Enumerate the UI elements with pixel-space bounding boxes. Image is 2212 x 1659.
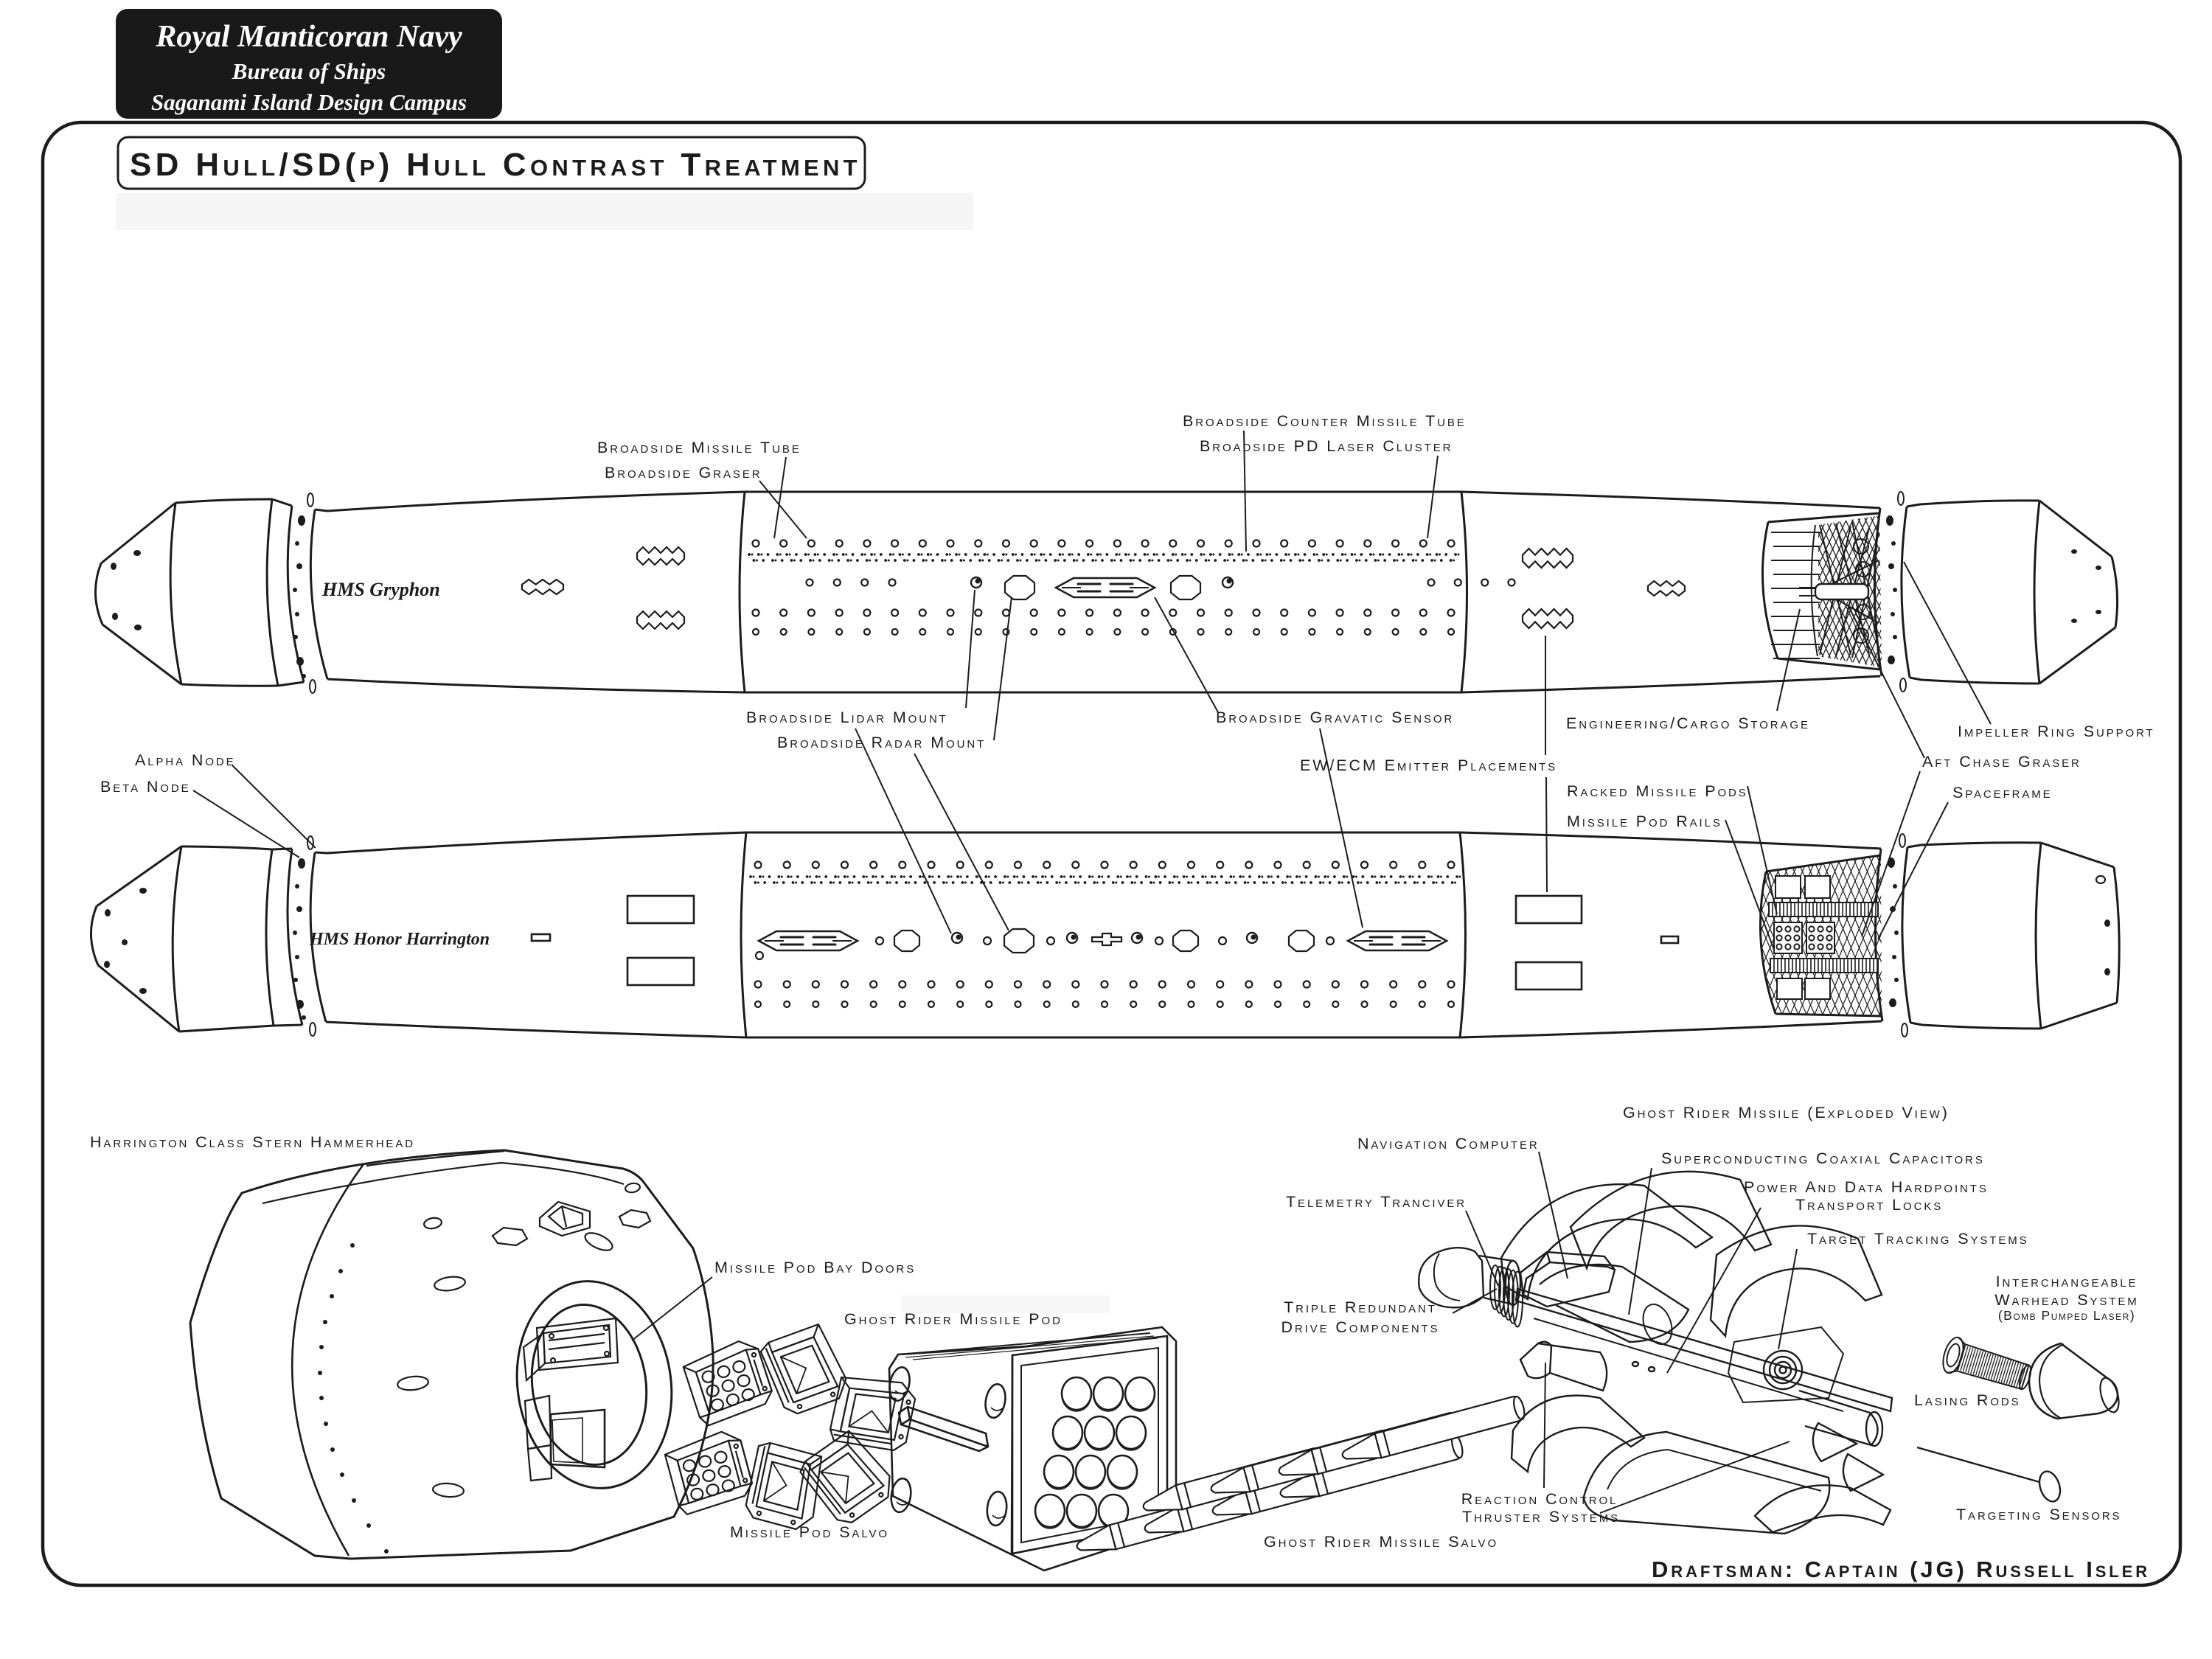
svg-text:EW/ECM Emitter Placements: EW/ECM Emitter Placements xyxy=(1300,757,1557,774)
svg-text:Targeting Sensors: Targeting Sensors xyxy=(1956,1506,2121,1523)
svg-text:HMS Honor Harrington: HMS Honor Harrington xyxy=(309,930,490,949)
svg-text:Triple Redundant: Triple Redundant xyxy=(1284,1298,1437,1316)
svg-text:Navigation Computer: Navigation Computer xyxy=(1357,1135,1540,1152)
svg-text:Broadside Counter Missile Tube: Broadside Counter Missile Tube xyxy=(1183,412,1467,430)
svg-text:(Bomb Pumped Laser): (Bomb Pumped Laser) xyxy=(1998,1308,2135,1323)
svg-text:Aft Chase Graser: Aft Chase Graser xyxy=(1922,753,2081,771)
svg-text:Engineering/Cargo Storage: Engineering/Cargo Storage xyxy=(1566,714,1810,732)
svg-text:Thruster Systems: Thruster Systems xyxy=(1462,1508,1620,1526)
svg-text:HMS Gryphon: HMS Gryphon xyxy=(321,579,440,600)
svg-text:Transport Locks: Transport Locks xyxy=(1795,1196,1943,1214)
svg-text:Power And Data Hardpoints: Power And Data Hardpoints xyxy=(1744,1178,1989,1196)
svg-text:Ghost Rider Missile Pod: Ghost Rider Missile Pod xyxy=(844,1310,1062,1328)
svg-text:Telemetry Tranciver: Telemetry Tranciver xyxy=(1286,1193,1467,1211)
svg-text:Spaceframe: Spaceframe xyxy=(1952,784,2053,801)
svg-text:Impeller Ring Support: Impeller Ring Support xyxy=(1958,723,2155,740)
svg-text:Target Tracking Systems: Target Tracking Systems xyxy=(1807,1230,2029,1248)
svg-text:Drive Components: Drive Components xyxy=(1281,1318,1439,1336)
svg-text:Lasing Rods: Lasing Rods xyxy=(1914,1391,2021,1409)
svg-text:Draftsman: Captain (JG) Russel: Draftsman: Captain (JG) Russell Isler xyxy=(1652,1557,2150,1582)
svg-text:Ghost Rider Missile (Exploded: Ghost Rider Missile (Exploded View) xyxy=(1623,1104,1950,1121)
svg-text:Missile Pod Rails: Missile Pod Rails xyxy=(1567,813,1722,830)
svg-text:Racked Missile Pods: Racked Missile Pods xyxy=(1567,782,1748,800)
svg-text:Saganami Island Design Campus: Saganami Island Design Campus xyxy=(151,89,467,115)
svg-text:Royal Manticoran Navy: Royal Manticoran Navy xyxy=(155,20,462,54)
svg-text:Superconducting Coaxial Capaci: Superconducting Coaxial Capacitors xyxy=(1661,1150,1985,1167)
svg-text:Broadside Missile Tube: Broadside Missile Tube xyxy=(597,439,801,456)
svg-text:Ghost Rider Missile Salvo: Ghost Rider Missile Salvo xyxy=(1264,1533,1498,1551)
svg-text:Broadside Lidar Mount: Broadside Lidar Mount xyxy=(746,709,948,726)
svg-text:Beta Node: Beta Node xyxy=(100,778,191,796)
svg-text:Harrington Class Stern Hammerh: Harrington Class Stern Hammerhead xyxy=(90,1133,415,1151)
svg-text:Broadside Gravatic Sensor: Broadside Gravatic Sensor xyxy=(1216,709,1454,726)
svg-text:Broadside Graser: Broadside Graser xyxy=(605,464,762,481)
svg-text:Missile Pod Salvo: Missile Pod Salvo xyxy=(730,1523,889,1541)
svg-text:Missile Pod Bay Doors: Missile Pod Bay Doors xyxy=(714,1259,916,1276)
svg-text:Alpha Node: Alpha Node xyxy=(135,751,236,769)
svg-text:SD Hull/SD(p) Hull Contrast Tr: SD Hull/SD(p) Hull Contrast Treatment xyxy=(130,147,861,183)
svg-text:Bureau of Ships: Bureau of Ships xyxy=(232,58,386,84)
svg-text:Broadside PD Laser Cluster: Broadside PD Laser Cluster xyxy=(1200,437,1453,455)
svg-text:Interchangeable: Interchangeable xyxy=(1996,1273,2138,1290)
svg-text:Broadside Radar Mount: Broadside Radar Mount xyxy=(777,734,986,751)
svg-text:Warhead System: Warhead System xyxy=(1994,1291,2138,1309)
svg-text:Reaction Control: Reaction Control xyxy=(1461,1490,1618,1508)
